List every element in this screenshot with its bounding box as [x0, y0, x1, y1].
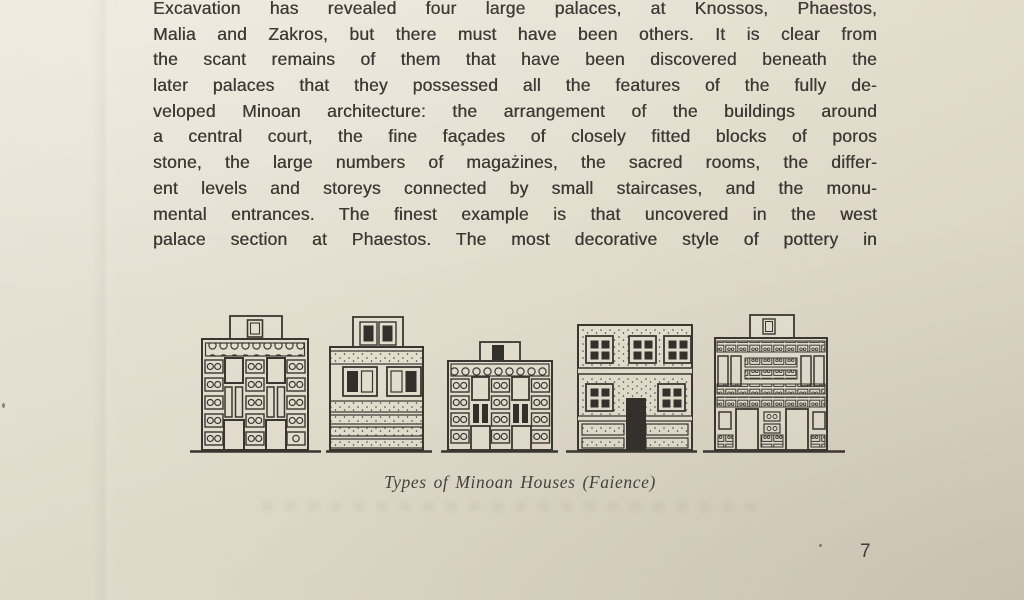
minoan-houses-figure — [185, 300, 855, 460]
minoan-house-3 — [448, 342, 552, 450]
ink-speck — [2, 403, 5, 408]
book-page-photo: Excavation has revealed four large palac… — [0, 0, 1024, 600]
paragraph-line: veloped Minoan architecture: the arrange… — [153, 99, 877, 125]
ink-speck — [819, 544, 822, 547]
reverse-page-showthrough — [262, 502, 762, 511]
figure-caption: Types of Minoan Houses (Faience) — [185, 472, 855, 493]
page-number: 7 — [860, 541, 890, 563]
minoan-house-4 — [578, 325, 692, 450]
paragraph-line: palace section at Phaestos. The most dec… — [153, 227, 877, 253]
paragraph-line: the scant remains of them that have been… — [153, 47, 877, 73]
minoan-house-5 — [715, 315, 827, 450]
minoan-house-1 — [202, 316, 308, 450]
paragraph-line: a central court, the fine façades of clo… — [153, 124, 877, 150]
minoan-houses-drawing — [185, 300, 855, 460]
paragraph-line: mental entrances. The finest example is … — [153, 202, 877, 228]
paragraph-line: Excavation has revealed four large palac… — [153, 0, 877, 22]
paragraph-line: ent levels and storeys connected by smal… — [153, 176, 877, 202]
body-paragraph: Excavation has revealed four large palac… — [153, 0, 877, 253]
paragraph-line: stone, the large numbers of magażines, t… — [153, 150, 877, 176]
paragraph-line: Malia and Zakros, but there must have be… — [153, 22, 877, 48]
minoan-house-2 — [330, 317, 423, 450]
page-crease — [92, 0, 118, 600]
paragraph-line: later palaces that they possessed all th… — [153, 73, 877, 99]
